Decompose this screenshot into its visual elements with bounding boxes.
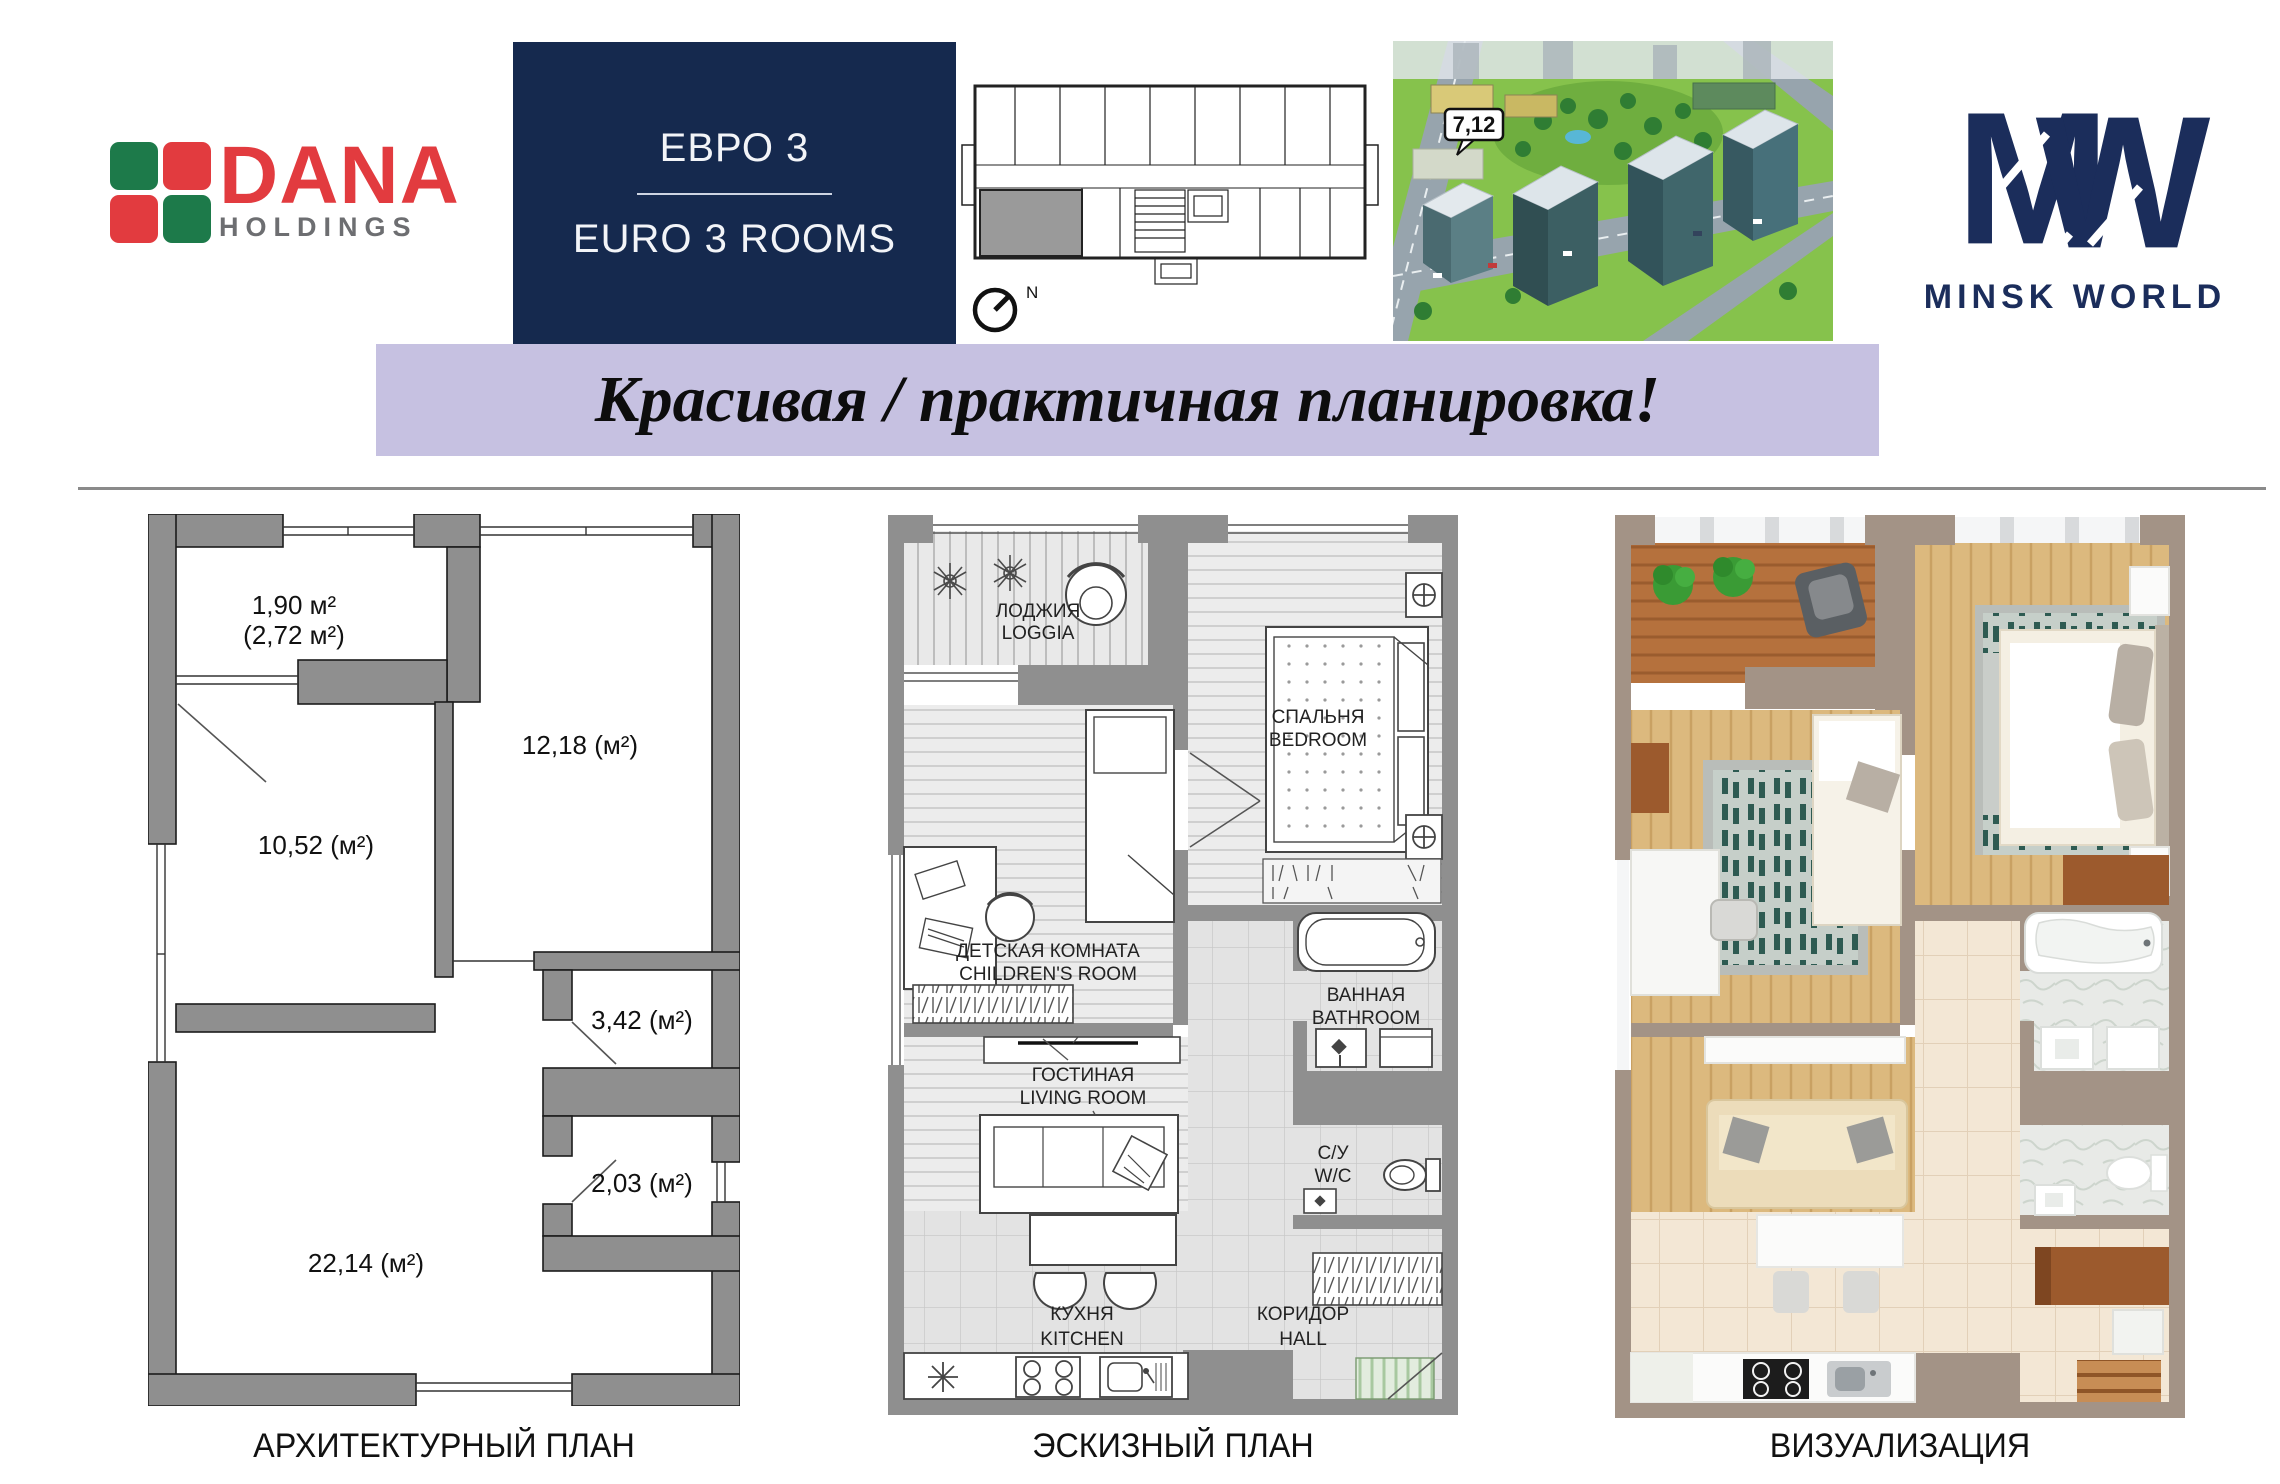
highlighted-apartment-footprint [980,190,1082,256]
slogan-text: Красивая / практичная планировка! [595,362,1660,438]
sketch-loggia-en: LOGGIA [1002,623,1075,644]
sofa-icon [980,1115,1178,1213]
sketch-living-ru: ГОСТИНАЯ [1032,1065,1134,1086]
tv-console-icon [984,1037,1180,1063]
arch-children-area: 10,52 (м²) [258,830,374,860]
dana-brand-name: DANA [219,140,460,212]
slogan-banner: Красивая / практичная планировка! [376,344,1879,456]
horizontal-divider [78,487,2266,490]
sketch-plan: ЛОДЖИЯ LOGGIA СПАЛЬНЯ BEDROOM ДЕТСКАЯ КО… [888,515,1458,1415]
children-wardrobe-icon [913,985,1073,1023]
sketch-bedroom-ru: СПАЛЬНЯ [1272,707,1365,728]
compass-north-label: N [1026,283,1038,302]
sketch-hall-ru: КОРИДОР [1257,1304,1349,1325]
fridge-icon [928,1362,958,1392]
hall-wardrobe-icon [1313,1253,1442,1305]
viz-left-window [1617,860,1629,1070]
sketch-children-en: CHILDREN'S ROOM [959,964,1137,985]
caption-architectural: АРХИТЕКТУРНЫЙ ПЛАН [163,1424,725,1468]
viz-kitchen-items [1631,1353,1915,1402]
minsk-world-wordmark: MINSK WORLD [1924,278,2226,316]
sketch-kitchen-ru: КУХНЯ [1050,1304,1113,1325]
sketch-children-ru: ДЕТСКАЯ КОМНАТА [956,941,1140,962]
arch-loggia-area: 1,90 м² [252,590,337,620]
arch-bathroom-area: 3,42 (м²) [591,1005,693,1035]
dana-square-red-icon [110,195,158,243]
sketch-wc-en: W/C [1315,1166,1352,1187]
sketch-hall-en: HALL [1279,1329,1327,1350]
sketch-loggia-ru: ЛОДЖИЯ [996,601,1081,622]
bath-sink-icon [1316,1029,1366,1067]
dana-square-green-icon [110,142,158,190]
euro3-separator [637,193,832,195]
euro3-title-en: EURO 3 ROOMS [573,217,896,262]
minsk-world-logo: M W MINSK WORLD [1905,72,2245,322]
wc-sink-icon [1304,1189,1336,1213]
dana-holdings-logo: DANA HOLDINGS [110,140,490,245]
building-number-label: 7,12 [1453,112,1496,137]
aerial-city-render: 7,12 [1393,41,1833,341]
dana-square-green-icon [163,195,211,243]
slide-euro3-layout: { "header": { "dana": {"name": "DANA", "… [0,0,2280,1484]
mw-monogram-icon: M W [1956,73,2211,288]
arch-loggia-area-full: (2,72 м²) [243,620,345,650]
caption-visualization: ВИЗУАЛИЗАЦИЯ [1629,1424,2171,1468]
visualization-render [1615,515,2185,1418]
sketch-living-en: LIVING ROOM [1020,1088,1147,1109]
building-floor-overview: N [960,40,1390,350]
sketch-bathroom-ru: ВАННАЯ [1327,985,1406,1006]
sketch-wc-ru: С/У [1317,1143,1349,1164]
bathtub-icon [1298,913,1435,971]
kitchen-counter-icon [904,1353,1188,1399]
toilet-icon [1384,1159,1440,1191]
sink-icon [1100,1357,1172,1397]
arch-living-area: 22,14 (м²) [308,1248,424,1278]
stove-icon [1016,1357,1080,1397]
sketch-bathroom-en: BATHROOM [1312,1008,1420,1029]
arch-bedroom-area: 12,18 (м²) [522,730,638,760]
sketch-bedroom-en: BEDROOM [1269,730,1367,751]
euro3-title-ru: ЕВРО 3 [660,126,810,171]
compass-icon: N [975,283,1038,330]
svg-text:W: W [2036,77,2211,288]
euro3-title-box: ЕВРО 3 EURO 3 ROOMS [513,42,956,345]
architectural-plan: 1,90 м² (2,72 м²) 12,18 (м²) 10,52 (м²) … [148,514,740,1406]
sketch-kitchen-en: KITCHEN [1040,1329,1123,1350]
caption-sketch: ЭСКИЗНЫЙ ПЛАН [902,1424,1444,1468]
bedroom-rug-icon [1263,859,1441,903]
children-bed-icon [1086,710,1174,922]
children-chair-icon [986,893,1034,941]
arch-wc-area: 2,03 (м²) [591,1168,693,1198]
dana-logo-squares-icon [110,142,211,243]
dana-square-red-icon [163,142,211,190]
washer-icon [1380,1029,1432,1067]
